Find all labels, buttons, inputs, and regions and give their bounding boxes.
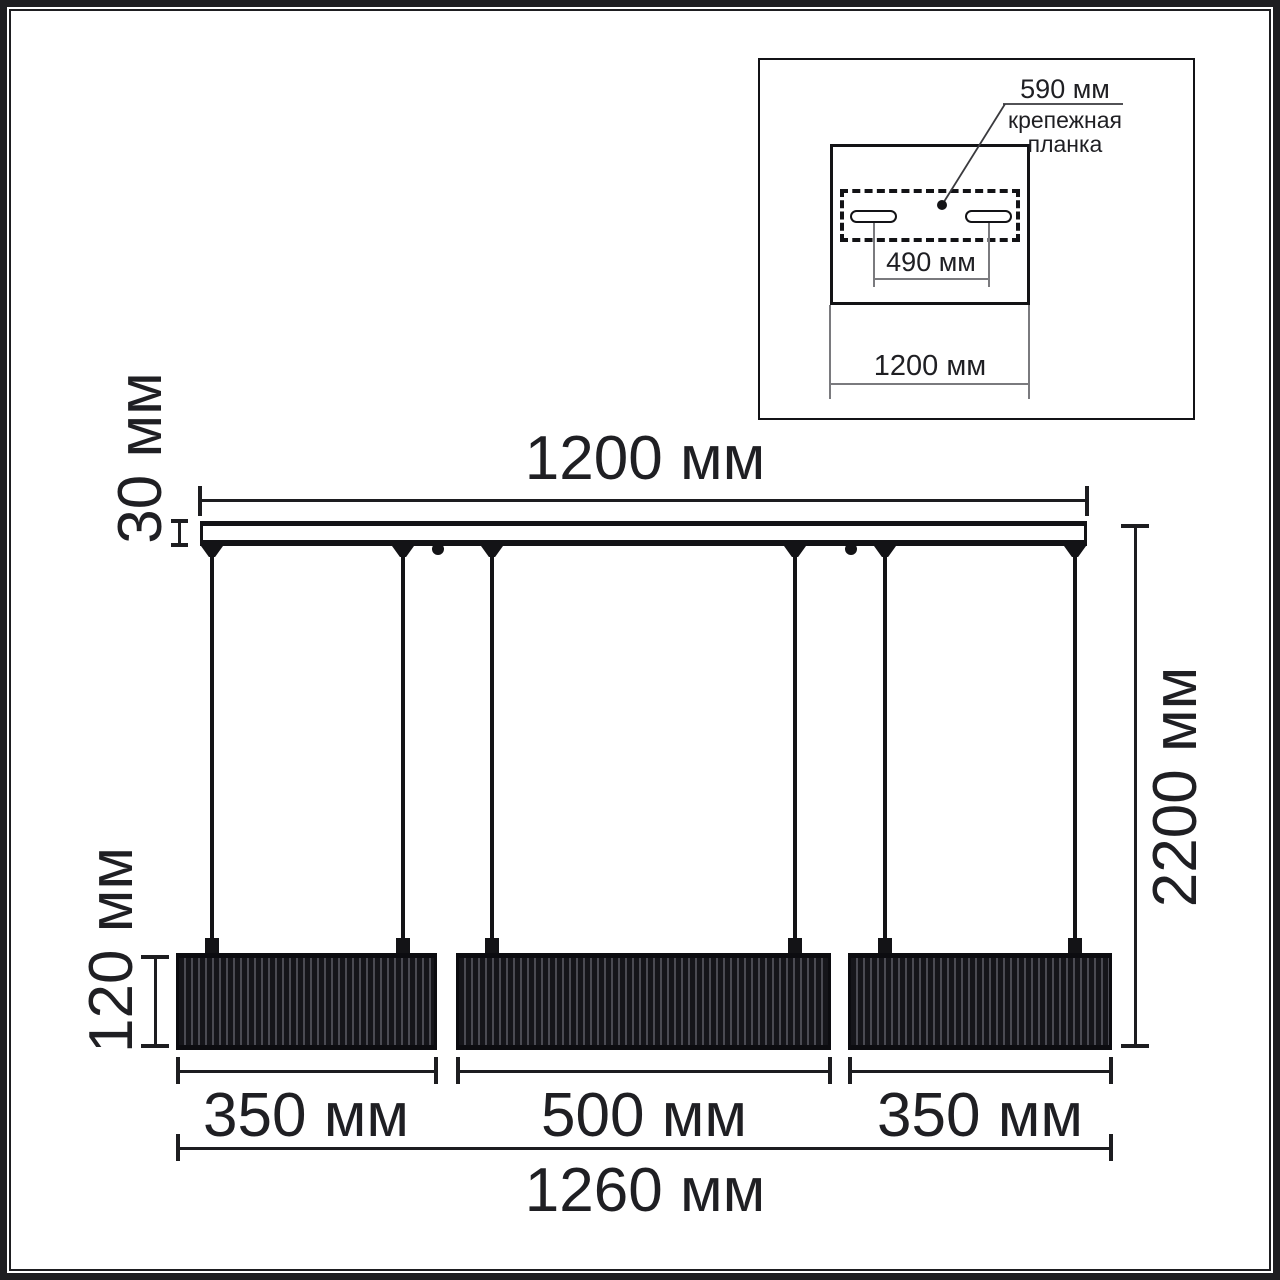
ext-line bbox=[829, 305, 831, 399]
dim-tick bbox=[1121, 524, 1149, 528]
ceiling-bar bbox=[200, 521, 1087, 546]
ext-line bbox=[1028, 305, 1030, 399]
plate-width-label: 590 мм bbox=[1020, 75, 1110, 103]
shade1-width-label: 350 мм bbox=[203, 1085, 409, 1147]
dim-tick bbox=[176, 1057, 180, 1084]
dim-tick bbox=[141, 955, 169, 959]
suspension-wire bbox=[401, 546, 405, 940]
suspension-wire bbox=[883, 546, 887, 940]
bar-thickness-label: 30 мм bbox=[110, 372, 172, 543]
dim-line-shade2 bbox=[458, 1070, 831, 1073]
dim-line-1200-inset bbox=[829, 383, 1029, 385]
plate-name-label: крепежная планка bbox=[1008, 108, 1122, 156]
power-feed-dot bbox=[432, 543, 444, 555]
suspension-wire bbox=[1073, 546, 1077, 940]
shade2-width-label: 500 мм bbox=[541, 1085, 747, 1147]
shade-height-label: 120 мм bbox=[81, 847, 143, 1053]
dimension-drawing: 590 мм крепежная планка 490 мм 1200 мм 1… bbox=[0, 0, 1280, 1280]
total-width-label: 1260 мм bbox=[525, 1160, 765, 1222]
total-height-label: 2200 мм bbox=[1145, 667, 1207, 907]
dim-tick bbox=[176, 1134, 180, 1161]
lampshade-left bbox=[176, 953, 437, 1050]
dim-tick bbox=[828, 1057, 832, 1084]
canopy-width-label: 1200 мм bbox=[874, 351, 986, 381]
dim-tick bbox=[1109, 1057, 1113, 1084]
cord-connector bbox=[396, 938, 410, 954]
lampshade-right bbox=[848, 953, 1112, 1050]
suspension-wire bbox=[490, 546, 494, 940]
dim-line-total-width bbox=[178, 1147, 1112, 1150]
dim-tick bbox=[848, 1057, 852, 1084]
suspension-wire bbox=[793, 546, 797, 940]
cord-connector bbox=[788, 938, 802, 954]
dim-tick bbox=[434, 1057, 438, 1084]
cord-connector bbox=[878, 938, 892, 954]
suspension-wire bbox=[210, 546, 214, 940]
cord-connector bbox=[1068, 938, 1082, 954]
inset-panel: 590 мм крепежная планка 490 мм 1200 мм bbox=[758, 58, 1195, 420]
dim-tick bbox=[456, 1057, 460, 1084]
dim-line-total-height bbox=[1134, 526, 1137, 1047]
dim-line-shade3 bbox=[850, 1070, 1112, 1073]
cord-connector bbox=[205, 938, 219, 954]
power-feed-dot bbox=[845, 543, 857, 555]
dim-tick bbox=[141, 1044, 169, 1048]
dim-tick bbox=[171, 543, 188, 547]
lampshade-center bbox=[456, 953, 831, 1050]
dim-line-490 bbox=[873, 278, 989, 280]
dim-line-shade1 bbox=[178, 1070, 437, 1073]
slot-spacing-label: 490 мм bbox=[886, 248, 976, 276]
dim-tick bbox=[171, 519, 188, 523]
shade3-width-label: 350 мм bbox=[877, 1085, 1083, 1147]
dim-tick bbox=[1085, 486, 1089, 516]
cord-connector bbox=[485, 938, 499, 954]
bar-width-label: 1200 мм bbox=[525, 428, 765, 490]
dim-tick bbox=[1121, 1044, 1149, 1048]
dim-tick bbox=[1109, 1134, 1113, 1161]
dim-tick bbox=[198, 486, 202, 516]
dim-line-bar-width bbox=[200, 499, 1087, 502]
dim-line-shade-height bbox=[154, 957, 157, 1047]
